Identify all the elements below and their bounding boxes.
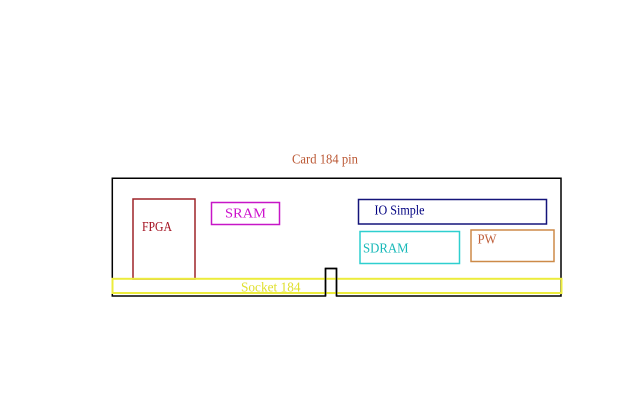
svg-text:PW: PW xyxy=(478,233,498,248)
svg-text:Socket 184: Socket 184 xyxy=(241,280,301,295)
svg-text:Card 184 pin: Card 184 pin xyxy=(292,152,358,167)
svg-text:IO Simple: IO Simple xyxy=(375,204,425,219)
svg-text:FPGA: FPGA xyxy=(142,220,173,235)
svg-text:SRAM: SRAM xyxy=(225,206,267,221)
svg-text:SDRAM: SDRAM xyxy=(363,241,409,256)
